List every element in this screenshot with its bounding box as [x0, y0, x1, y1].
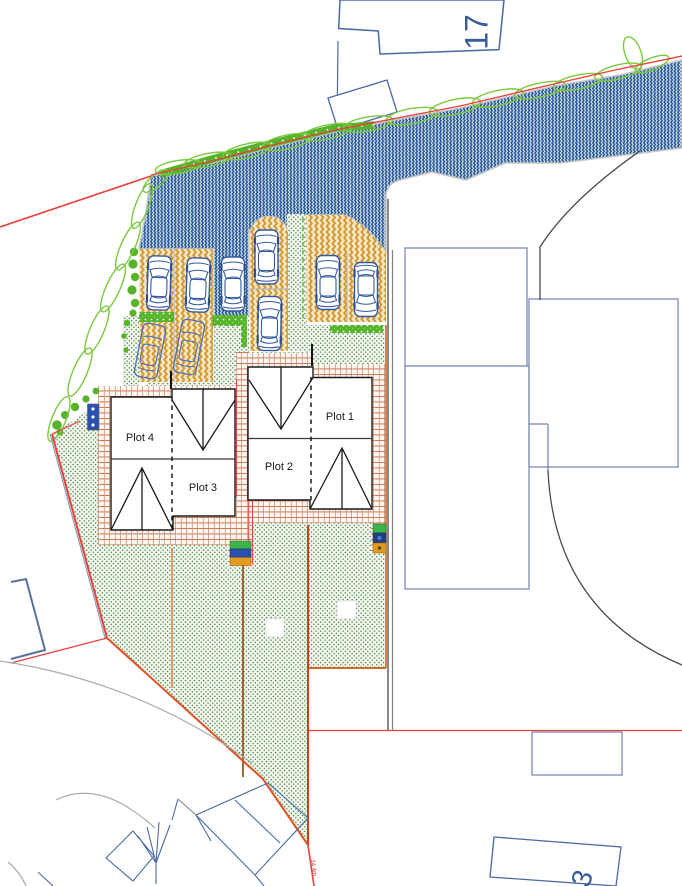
- svg-text:Plot 3: Plot 3: [189, 482, 217, 494]
- svg-text:17: 17: [458, 14, 494, 50]
- svg-text:Plot 2: Plot 2: [265, 461, 293, 473]
- svg-text:Plot 1: Plot 1: [326, 411, 354, 423]
- svg-text:Plot 4: Plot 4: [126, 432, 154, 444]
